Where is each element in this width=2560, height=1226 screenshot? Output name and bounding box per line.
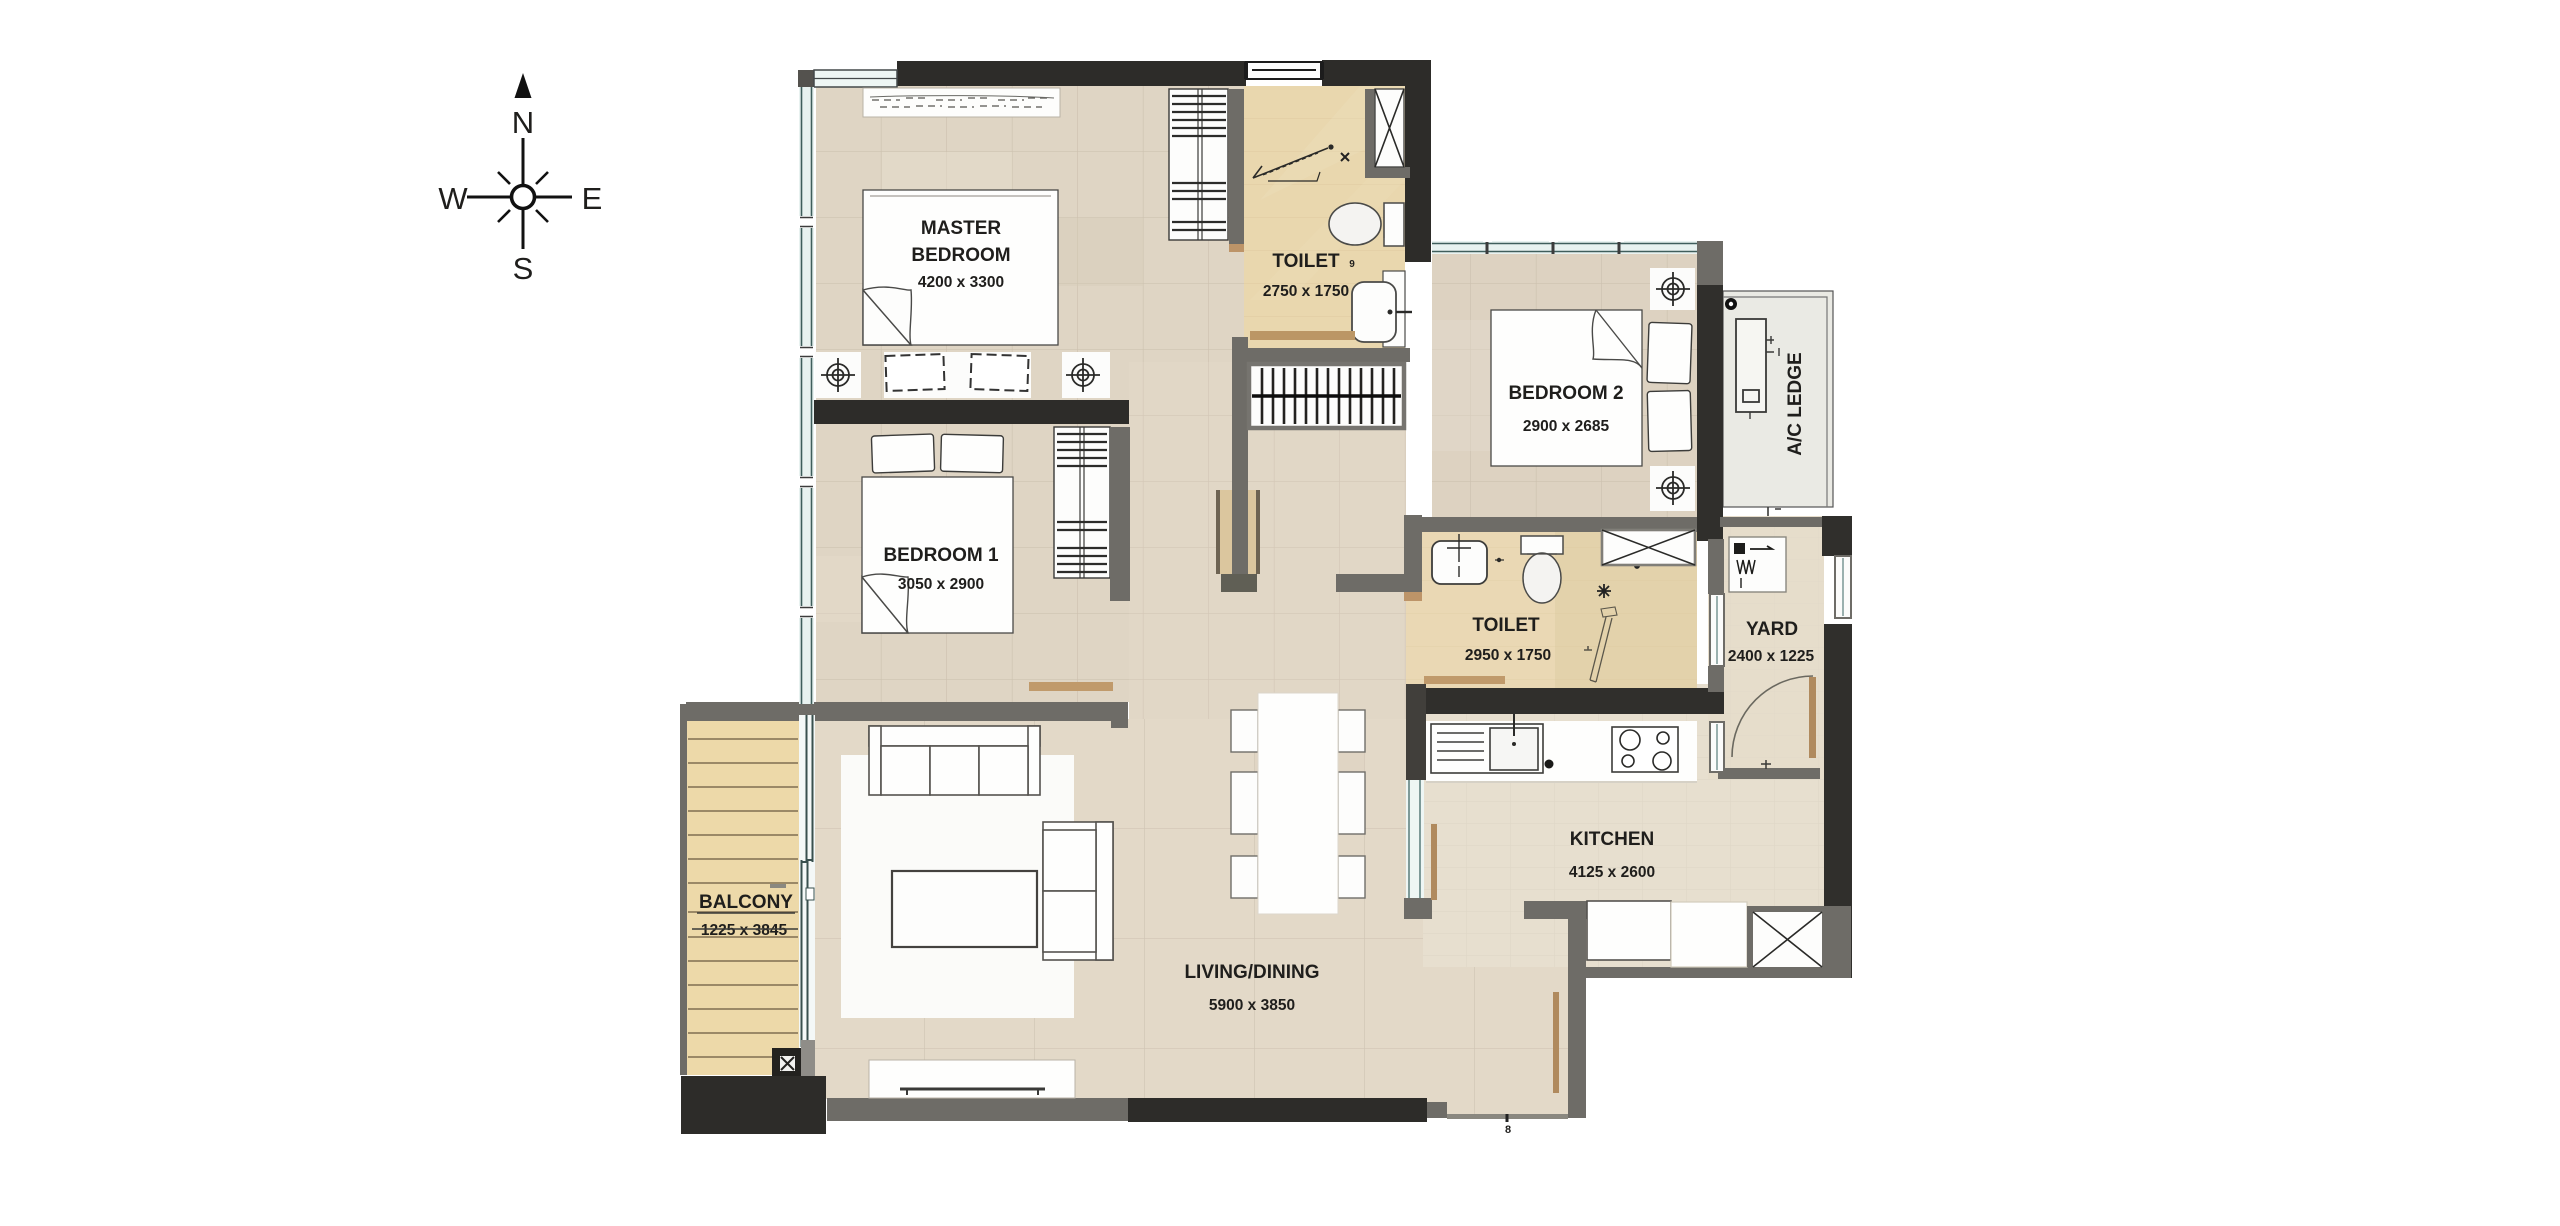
- svg-text:W: W: [438, 181, 468, 216]
- svg-text:BALCONY: BALCONY: [699, 892, 793, 913]
- svg-text:BEDROOM 2: BEDROOM 2: [1508, 383, 1623, 404]
- svg-text:9: 9: [1349, 259, 1355, 270]
- svg-text:8: 8: [1505, 1124, 1511, 1136]
- svg-text:2950 x 1750: 2950 x 1750: [1465, 647, 1551, 664]
- svg-text:S: S: [513, 251, 534, 286]
- svg-text:2900 x 2685: 2900 x 2685: [1523, 418, 1610, 435]
- svg-text:BEDROOM 1: BEDROOM 1: [883, 545, 999, 566]
- svg-text:4200 x 3300: 4200 x 3300: [918, 274, 1004, 291]
- svg-text:YARD: YARD: [1746, 619, 1798, 640]
- svg-text:A/C LEDGE: A/C LEDGE: [1785, 352, 1806, 455]
- svg-text:BEDROOM: BEDROOM: [911, 245, 1010, 266]
- svg-text:KITCHEN: KITCHEN: [1570, 829, 1654, 850]
- svg-text:2750 x 1750: 2750 x 1750: [1263, 283, 1349, 300]
- svg-text:TOILET: TOILET: [1472, 615, 1540, 636]
- svg-text:N: N: [512, 105, 534, 140]
- svg-text:LIVING/DINING: LIVING/DINING: [1184, 962, 1319, 983]
- svg-text:E: E: [582, 181, 603, 216]
- svg-text:MASTER: MASTER: [921, 218, 1002, 239]
- svg-text:2400 x 1225: 2400 x 1225: [1728, 648, 1815, 665]
- svg-text:TOILET: TOILET: [1272, 251, 1340, 272]
- svg-text:4125 x 2600: 4125 x 2600: [1569, 864, 1655, 881]
- svg-text:1225 x 3845: 1225 x 3845: [701, 922, 788, 939]
- svg-text:3050 x 2900: 3050 x 2900: [898, 576, 984, 593]
- svg-text:5900 x 3850: 5900 x 3850: [1209, 997, 1295, 1014]
